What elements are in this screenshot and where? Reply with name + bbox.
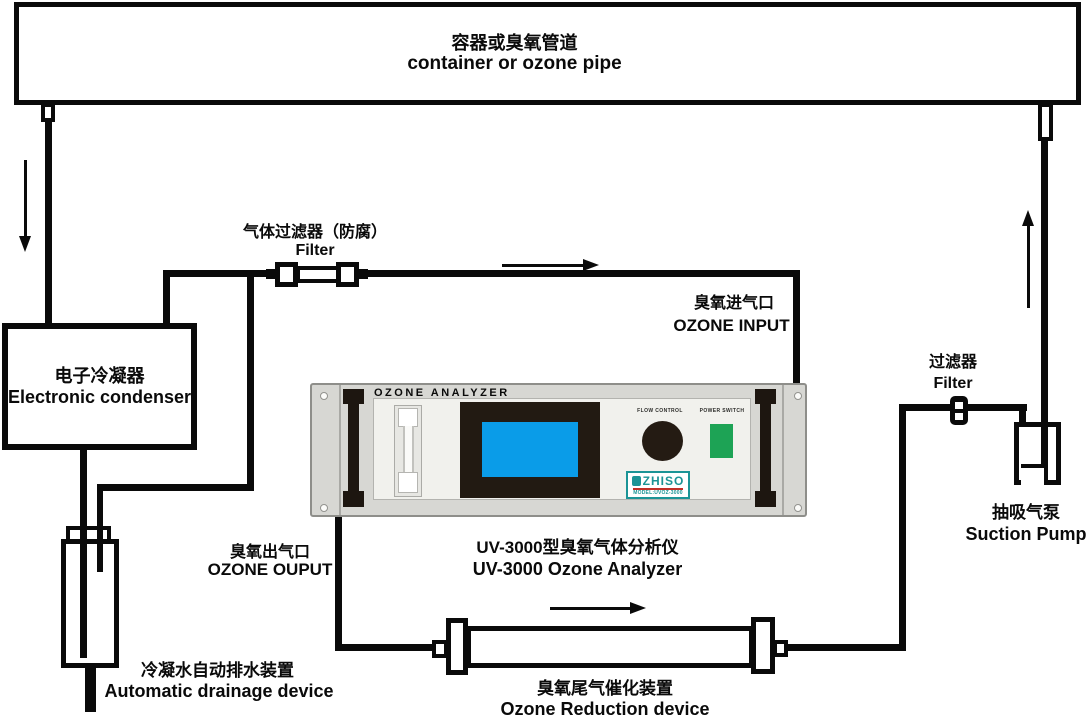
ozone-input-label-en: OZONE INPUT [649, 316, 814, 335]
power-switch [710, 424, 733, 458]
panel-screw [794, 504, 802, 512]
panel-seam [782, 385, 784, 515]
analyzer-title: OZONE ANALYZER [374, 387, 510, 399]
reduction-label-zh: 臭氧尾气催化装置 [490, 679, 720, 698]
brand-name: ZHISO [643, 475, 685, 487]
pipe-line [163, 270, 800, 277]
panel-screw [320, 392, 328, 400]
rack-handle-right [760, 400, 771, 493]
container-box: 容器或臭氧管道 container or ozone pipe [14, 2, 1081, 105]
pipe-line [97, 484, 103, 572]
pump-filter-label-en: Filter [890, 375, 1016, 393]
pipe-line [97, 484, 254, 491]
filter-fitting [357, 269, 368, 279]
filter-body [950, 396, 968, 425]
display-screen [482, 422, 578, 477]
flow-control-knob [642, 421, 683, 461]
rack-handle-right [755, 491, 776, 507]
analyzer-inner-panel: FLOW CONTROL POWER SWITCH [373, 398, 751, 500]
reduction-label-en: Ozone Reduction device [490, 699, 720, 717]
container-label-en: container or ozone pipe [407, 53, 621, 74]
brand-logo: ZHISO MODEL:UVOZ-3000 [626, 471, 690, 499]
filter-slot [955, 413, 963, 420]
flow-meter-bottom [398, 472, 418, 493]
condenser-label-en: Electronic condenser [8, 387, 191, 407]
filter-slot [955, 402, 963, 409]
rack-handle-left [343, 491, 364, 507]
drainage-label-zh: 冷凝水自动排水装置 [120, 661, 315, 680]
filter-cap [275, 262, 298, 287]
power-switch-label: POWER SWITCH [686, 408, 758, 414]
brand-model: MODEL:UVOZ-3000 [633, 491, 682, 496]
zhiso-logo-icon [632, 476, 641, 486]
container-outlet-nozzle [41, 103, 55, 122]
pump-label-zh: 抽吸气泵 [950, 503, 1088, 522]
panel-screw [794, 392, 802, 400]
rack-handle-left [348, 400, 359, 493]
pump-label-en: Suction Pump [950, 524, 1088, 544]
flow-meter-top [398, 408, 418, 427]
pipe-line [247, 270, 254, 488]
drainage-body [61, 539, 119, 668]
analyzer-caption-en: UV-3000 Ozone Analyzer [420, 559, 735, 579]
panel-seam [339, 385, 341, 515]
panel-screw [320, 504, 328, 512]
pump-filter-label-zh: 过滤器 [890, 354, 1016, 372]
filter-cap [336, 262, 359, 287]
pipe-line [785, 644, 906, 651]
condenser-label-zh: 电子冷凝器 [55, 366, 145, 386]
pipe-line [163, 270, 170, 326]
container-label-zh: 容器或臭氧管道 [452, 33, 578, 53]
suction-pump-notch [1021, 464, 1048, 485]
ozone-output-label-en: OZONE OUPUT [185, 560, 355, 579]
condenser-box: 电子冷凝器 Electronic condenser [2, 323, 197, 450]
pipe-line [45, 110, 52, 325]
container-outlet-nozzle [1038, 103, 1053, 141]
analyzer-caption-zh: UV-3000型臭氧气体分析仪 [420, 538, 735, 557]
ozone-input-label-zh: 臭氧进气口 [649, 295, 819, 313]
reduction-flange-left [446, 618, 468, 675]
reduction-outlet-fitting [773, 640, 788, 657]
gas-filter-label-en: Filter [230, 242, 400, 260]
ozone-analyzer-installation-diagram: 容器或臭氧管道 container or ozone pipe 电子冷凝器 El… [0, 0, 1088, 717]
pipe-line [899, 404, 906, 651]
filter-body [296, 266, 340, 283]
pipe-line [80, 448, 87, 658]
drainage-label-en: Automatic drainage device [95, 681, 343, 701]
gas-filter-label-zh: 气体过滤器（防腐） [230, 224, 400, 242]
reduction-tube-body [466, 626, 754, 668]
pipe-line [1041, 138, 1048, 466]
reduction-flange-right [751, 617, 775, 674]
pipe-line [335, 515, 342, 651]
pipe-line [335, 644, 436, 651]
flow-meter-tube [403, 426, 414, 473]
analyzer-front-panel: OZONE ANALYZER FLOW CONTROL POWER SWITCH… [310, 383, 807, 517]
